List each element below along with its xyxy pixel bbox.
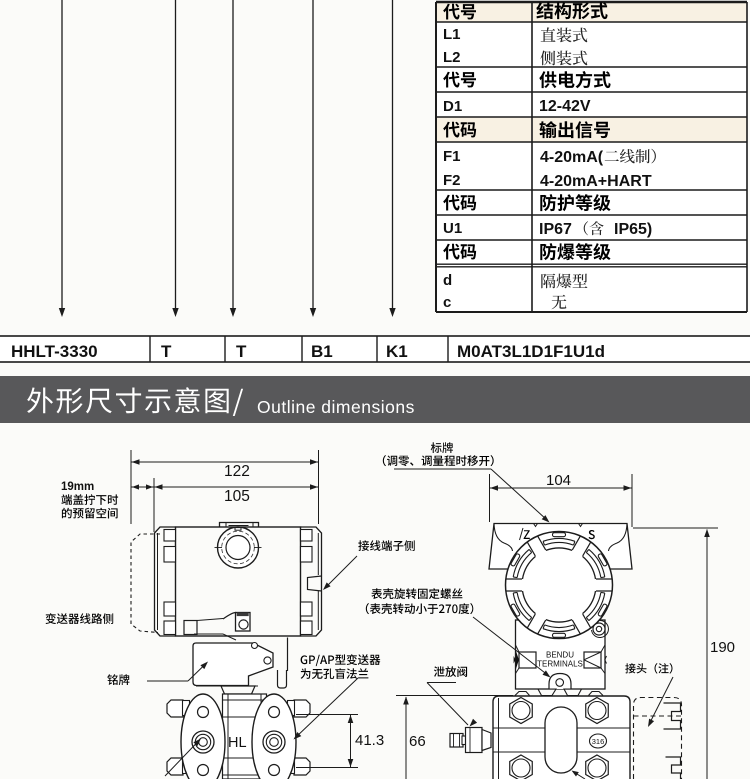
svg-text:c: c xyxy=(443,294,451,311)
svg-text:4-20mA+HART: 4-20mA+HART xyxy=(540,173,652,190)
svg-text:105: 105 xyxy=(224,488,250,505)
svg-text:12-42V: 12-42V xyxy=(539,98,591,115)
svg-text:190: 190 xyxy=(710,639,735,656)
svg-text:4-20mA(: 4-20mA( xyxy=(540,149,604,166)
svg-text:316: 316 xyxy=(592,737,605,746)
svg-text:K1: K1 xyxy=(386,342,408,361)
svg-text:F1: F1 xyxy=(443,148,461,165)
svg-text:IP67: IP67 xyxy=(539,221,572,238)
svg-text:B1: B1 xyxy=(311,342,333,361)
svg-text:66: 66 xyxy=(409,733,426,750)
svg-text:104: 104 xyxy=(546,472,571,489)
svg-text:TERMINALS: TERMINALS xyxy=(537,660,583,669)
svg-text:19mm: 19mm xyxy=(61,481,94,493)
svg-text:HHLT-3330: HHLT-3330 xyxy=(11,342,98,361)
svg-text:L1: L1 xyxy=(443,26,461,43)
svg-text:IP65): IP65) xyxy=(614,221,652,238)
svg-text:122: 122 xyxy=(224,463,250,480)
svg-text:d: d xyxy=(443,272,452,289)
svg-text:Outline dimensions: Outline dimensions xyxy=(257,397,415,417)
svg-text:T: T xyxy=(236,342,247,361)
svg-text:BENDU: BENDU xyxy=(546,651,574,660)
svg-text:F2: F2 xyxy=(443,172,461,189)
svg-text:T: T xyxy=(161,342,172,361)
svg-text:D1: D1 xyxy=(443,98,462,115)
svg-text:M0AT3L1D1F1U1d: M0AT3L1D1F1U1d xyxy=(457,342,605,361)
svg-text:HL: HL xyxy=(228,735,247,751)
svg-text:L2: L2 xyxy=(443,49,461,66)
svg-text:U1: U1 xyxy=(443,220,462,237)
svg-text:41.3: 41.3 xyxy=(355,732,384,749)
